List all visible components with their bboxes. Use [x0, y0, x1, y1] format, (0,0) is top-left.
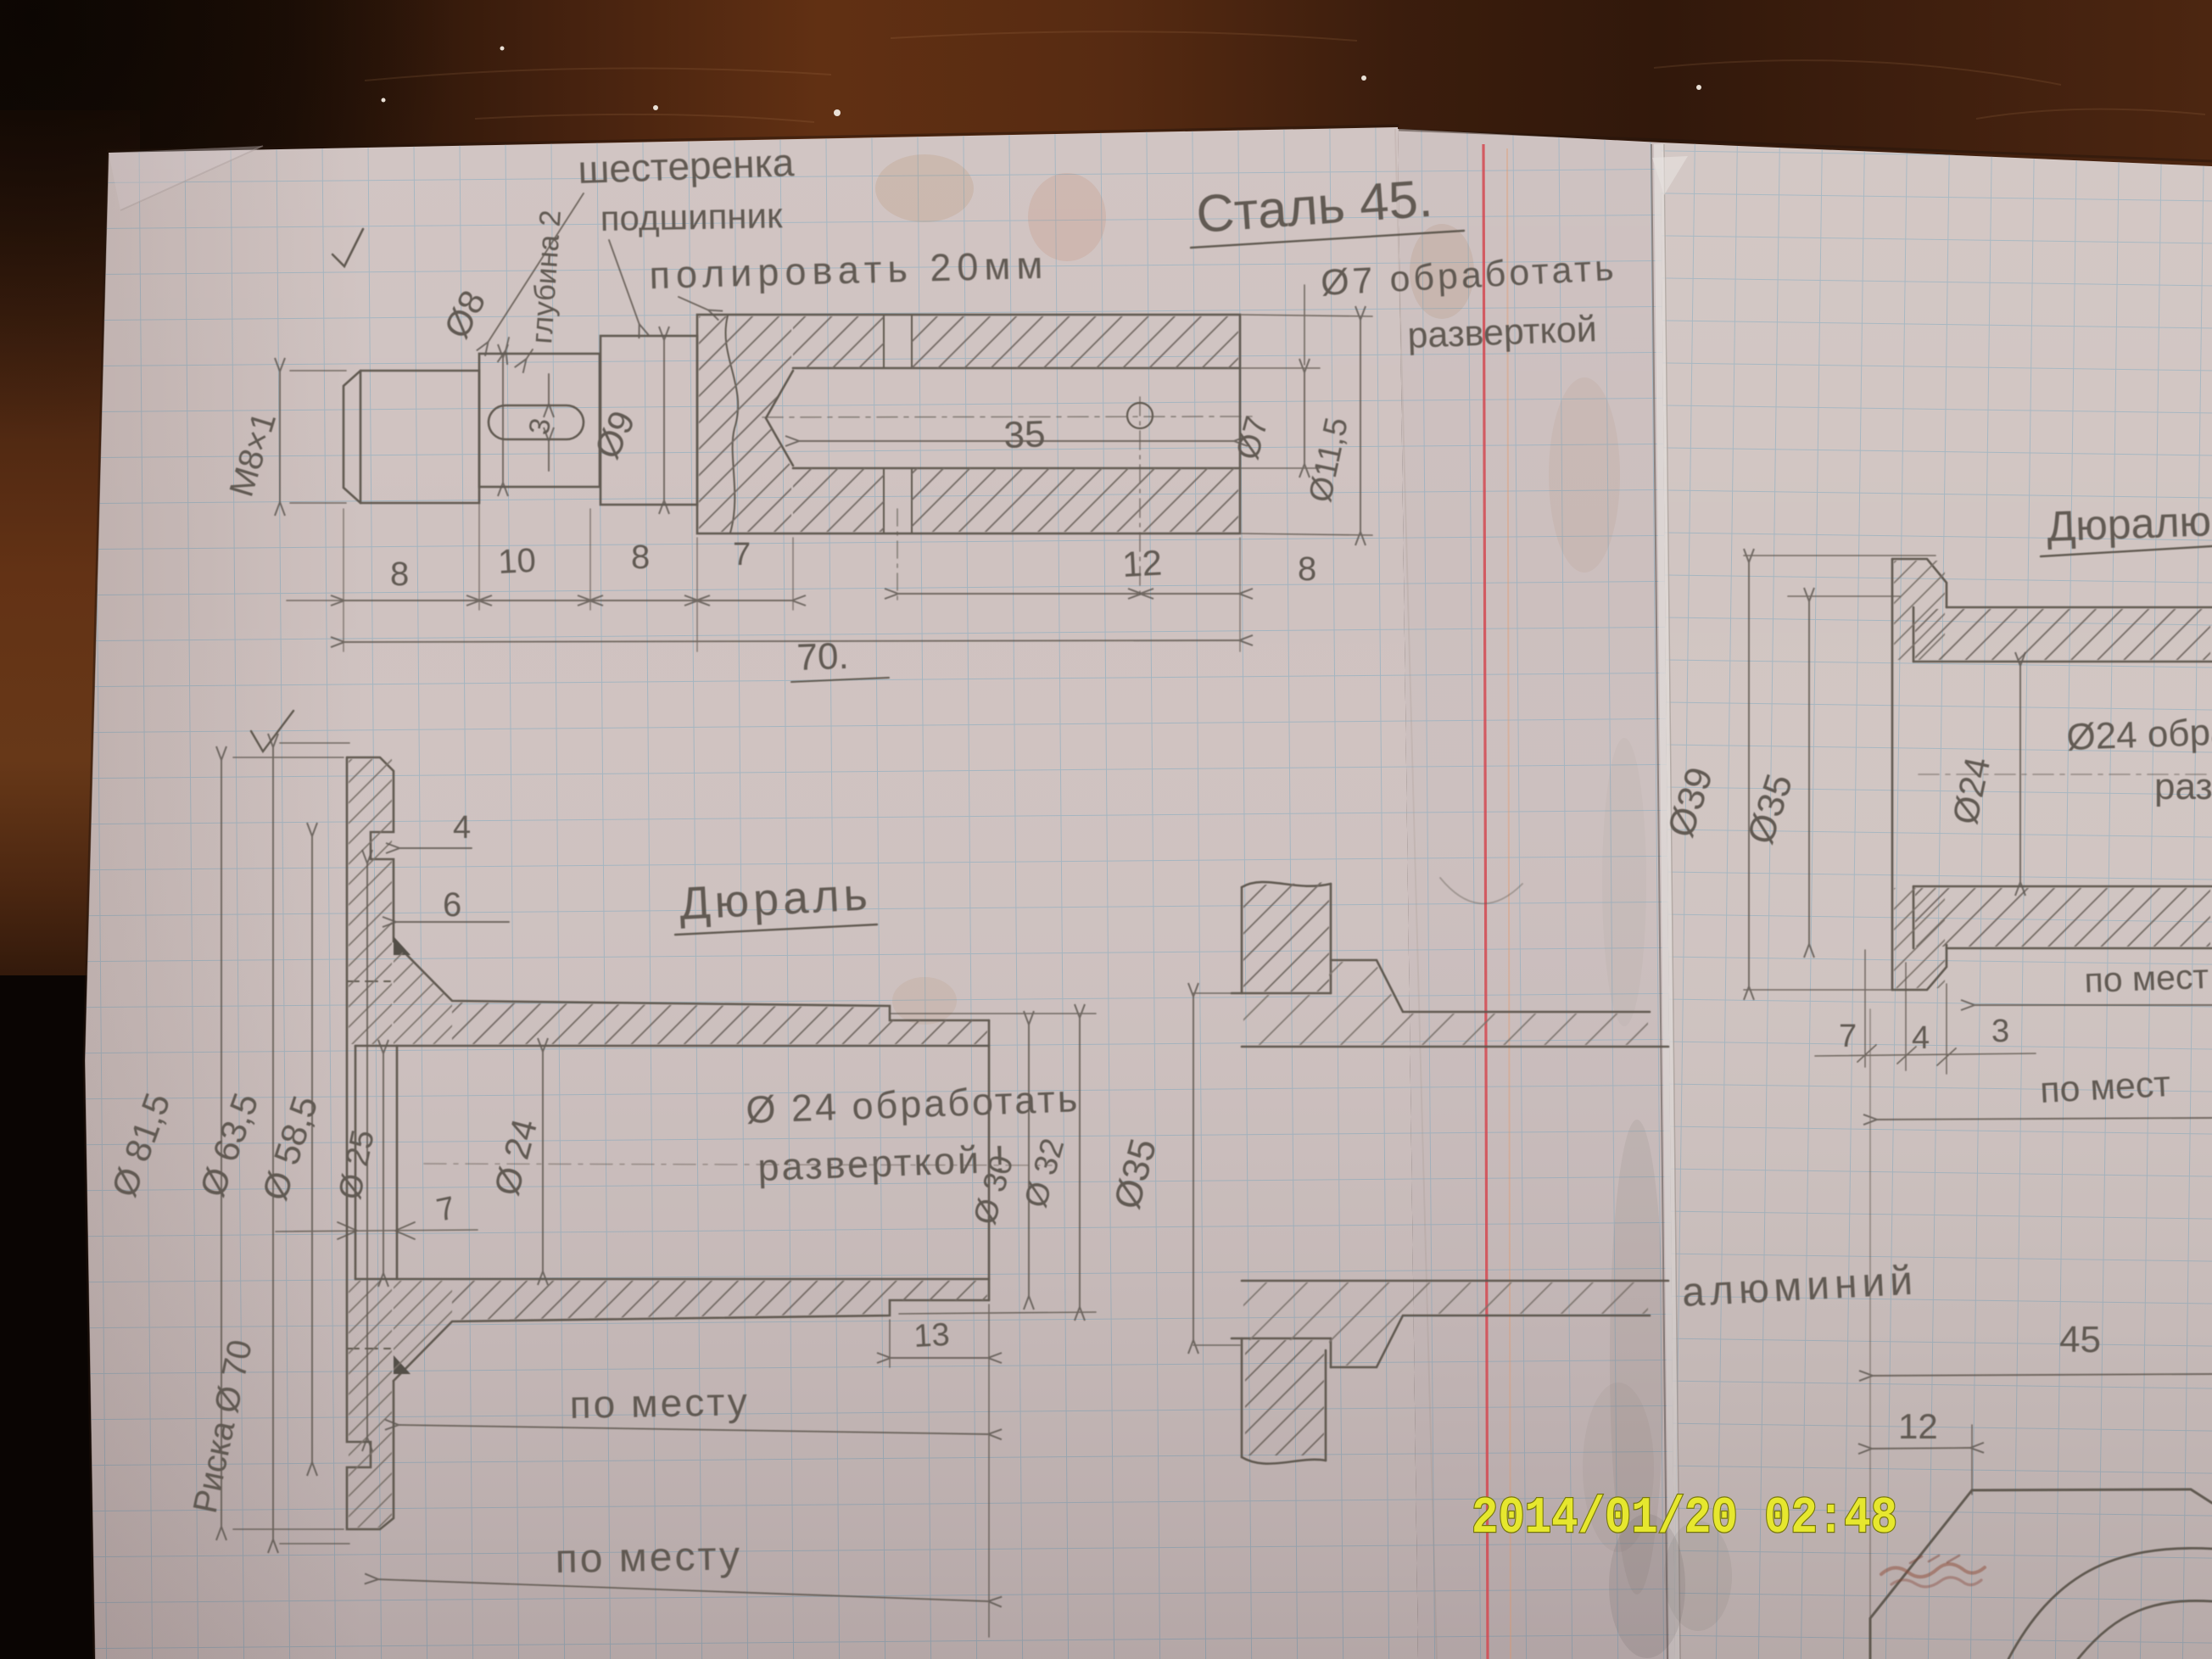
svg-text:12: 12	[1898, 1406, 1938, 1446]
svg-text:по месту: по месту	[555, 1533, 742, 1582]
svg-text:45: 45	[2059, 1319, 2101, 1360]
svg-text:Дюраль: Дюраль	[678, 869, 873, 930]
svg-text:разв: разв	[2154, 766, 2212, 807]
svg-text:шестеренка: шестеренка	[578, 140, 796, 192]
svg-text:подшипник: подшипник	[600, 195, 783, 238]
svg-text:13: 13	[913, 1317, 950, 1355]
svg-text:по мест: по мест	[2084, 957, 2209, 1000]
svg-text:разверткой !: разверткой !	[757, 1137, 1008, 1189]
svg-text:Дюралюм: Дюралюм	[2046, 496, 2212, 550]
svg-text:7: 7	[733, 537, 751, 573]
svg-text:3: 3	[1991, 1014, 2009, 1049]
svg-text:по мест: по мест	[2039, 1064, 2171, 1111]
svg-text:10: 10	[497, 542, 537, 581]
svg-text:35: 35	[1003, 413, 1047, 456]
svg-text:по месту: по месту	[569, 1379, 750, 1427]
svg-text:2014/01/20 02:48: 2014/01/20 02:48	[1472, 1490, 1897, 1548]
svg-text:8: 8	[631, 539, 650, 576]
svg-text:разверткой: разверткой	[1407, 309, 1598, 356]
svg-text:4: 4	[1912, 1020, 1930, 1056]
svg-text:8: 8	[390, 556, 409, 593]
svg-text:8: 8	[1298, 550, 1316, 588]
svg-text:4: 4	[453, 810, 471, 846]
svg-text:12: 12	[1121, 543, 1163, 584]
svg-text:6: 6	[443, 886, 461, 924]
svg-text:7: 7	[1839, 1019, 1857, 1054]
svg-text:Ø24 обраб: Ø24 обраб	[2066, 710, 2212, 758]
svg-text:70.: 70.	[796, 635, 850, 679]
